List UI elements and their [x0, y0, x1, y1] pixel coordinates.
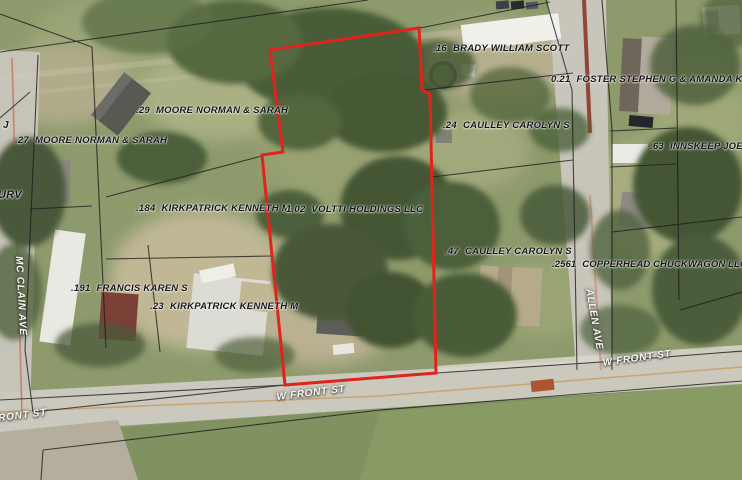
- map-canvas[interactable]: .16BRADY WILLIAM SCOTT 0.21FOSTER STEPHE…: [0, 0, 742, 480]
- aerial-imagery: [0, 0, 742, 480]
